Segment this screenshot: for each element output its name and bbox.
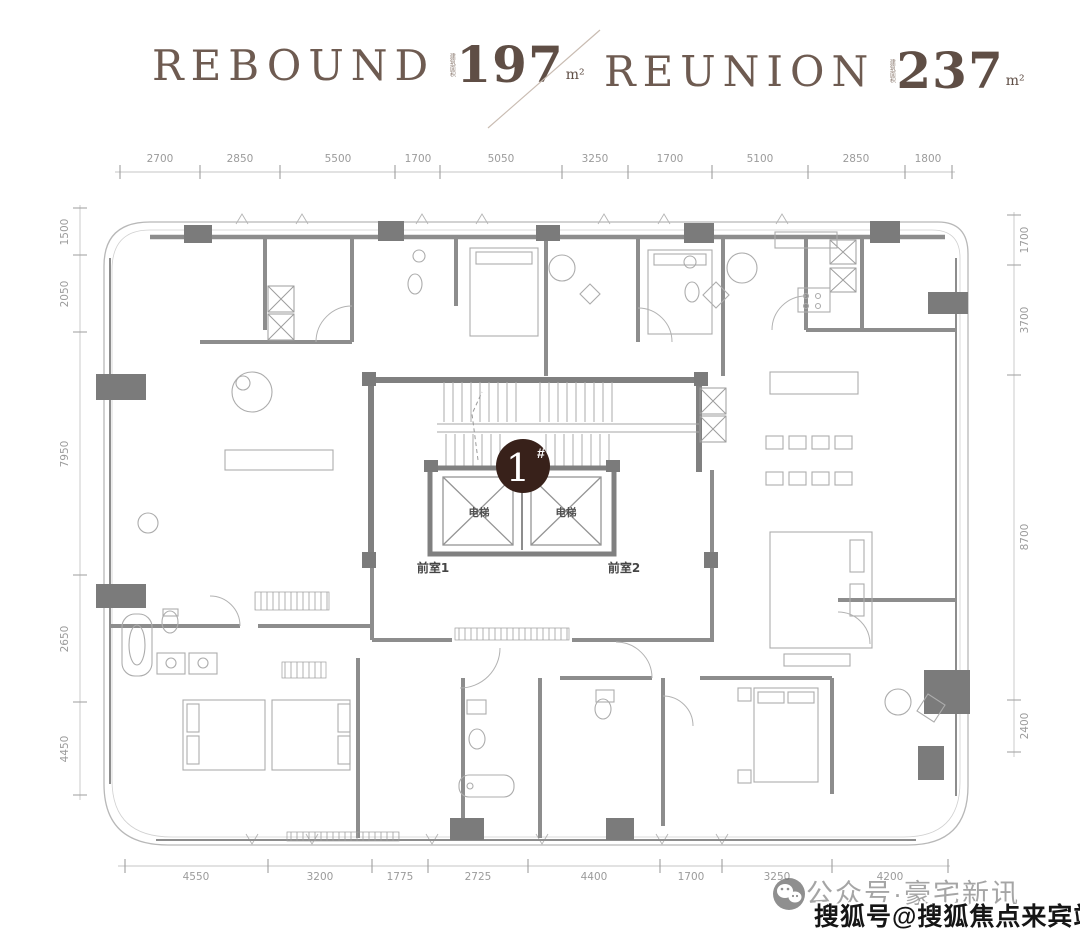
dimension-label: 8700 — [1019, 524, 1031, 551]
dimension-label: 2850 — [843, 153, 870, 165]
watermark-sohu: 搜狐号@搜狐焦点来宾站 — [814, 897, 1080, 933]
dimension-label: 2050 — [59, 281, 71, 308]
badge-number: 1 — [506, 446, 530, 490]
dimension-label: 4450 — [59, 736, 71, 763]
dimension-label: 1800 — [915, 153, 942, 165]
dimension-label: 2850 — [227, 153, 254, 165]
dimension-label: 3250 — [582, 153, 609, 165]
dimension-label: 2700 — [147, 153, 174, 165]
dimension-label: 2400 — [1019, 713, 1031, 740]
elevator-label-left: 电梯 — [469, 506, 490, 519]
elevator-label-right: 电梯 — [556, 506, 577, 519]
floor-plan-drawing: 2700 2850 5500 1700 5050 3250 1700 5100 … — [0, 0, 1080, 936]
cabinets — [268, 240, 856, 442]
dimension-label: 7950 — [59, 441, 71, 468]
wechat-icon — [772, 877, 806, 911]
dimension-label: 2650 — [59, 626, 71, 653]
dimension-label: 2725 — [465, 871, 492, 883]
floorplan-page: REBOUND 建筑面积 197 m² REUNION 建筑面积 237 m² — [0, 0, 1080, 936]
dimension-label: 5500 — [325, 153, 352, 165]
dimension-label: 1775 — [387, 871, 414, 883]
unit-number-badge: 1 # — [496, 439, 550, 493]
badge-suffix: # — [537, 445, 545, 461]
dimension-label: 1700 — [678, 871, 705, 883]
dimension-label: 1700 — [657, 153, 684, 165]
dimension-label: 1700 — [405, 153, 432, 165]
closet-strips — [255, 592, 569, 841]
dimension-label: 4400 — [581, 871, 608, 883]
title-divider-line — [488, 30, 600, 128]
dimension-label: 3200 — [307, 871, 334, 883]
dimension-label: 1500 — [59, 219, 71, 246]
front-room-2-label: 前室2 — [608, 560, 640, 575]
dimension-label: 5050 — [488, 153, 515, 165]
front-room-1-label: 前室1 — [417, 560, 449, 575]
dimension-label: 5100 — [747, 153, 774, 165]
dimension-label: 3700 — [1019, 307, 1031, 334]
dimension-label: 1700 — [1019, 227, 1031, 254]
stair-treads — [444, 382, 612, 422]
dimension-label: 4550 — [183, 871, 210, 883]
